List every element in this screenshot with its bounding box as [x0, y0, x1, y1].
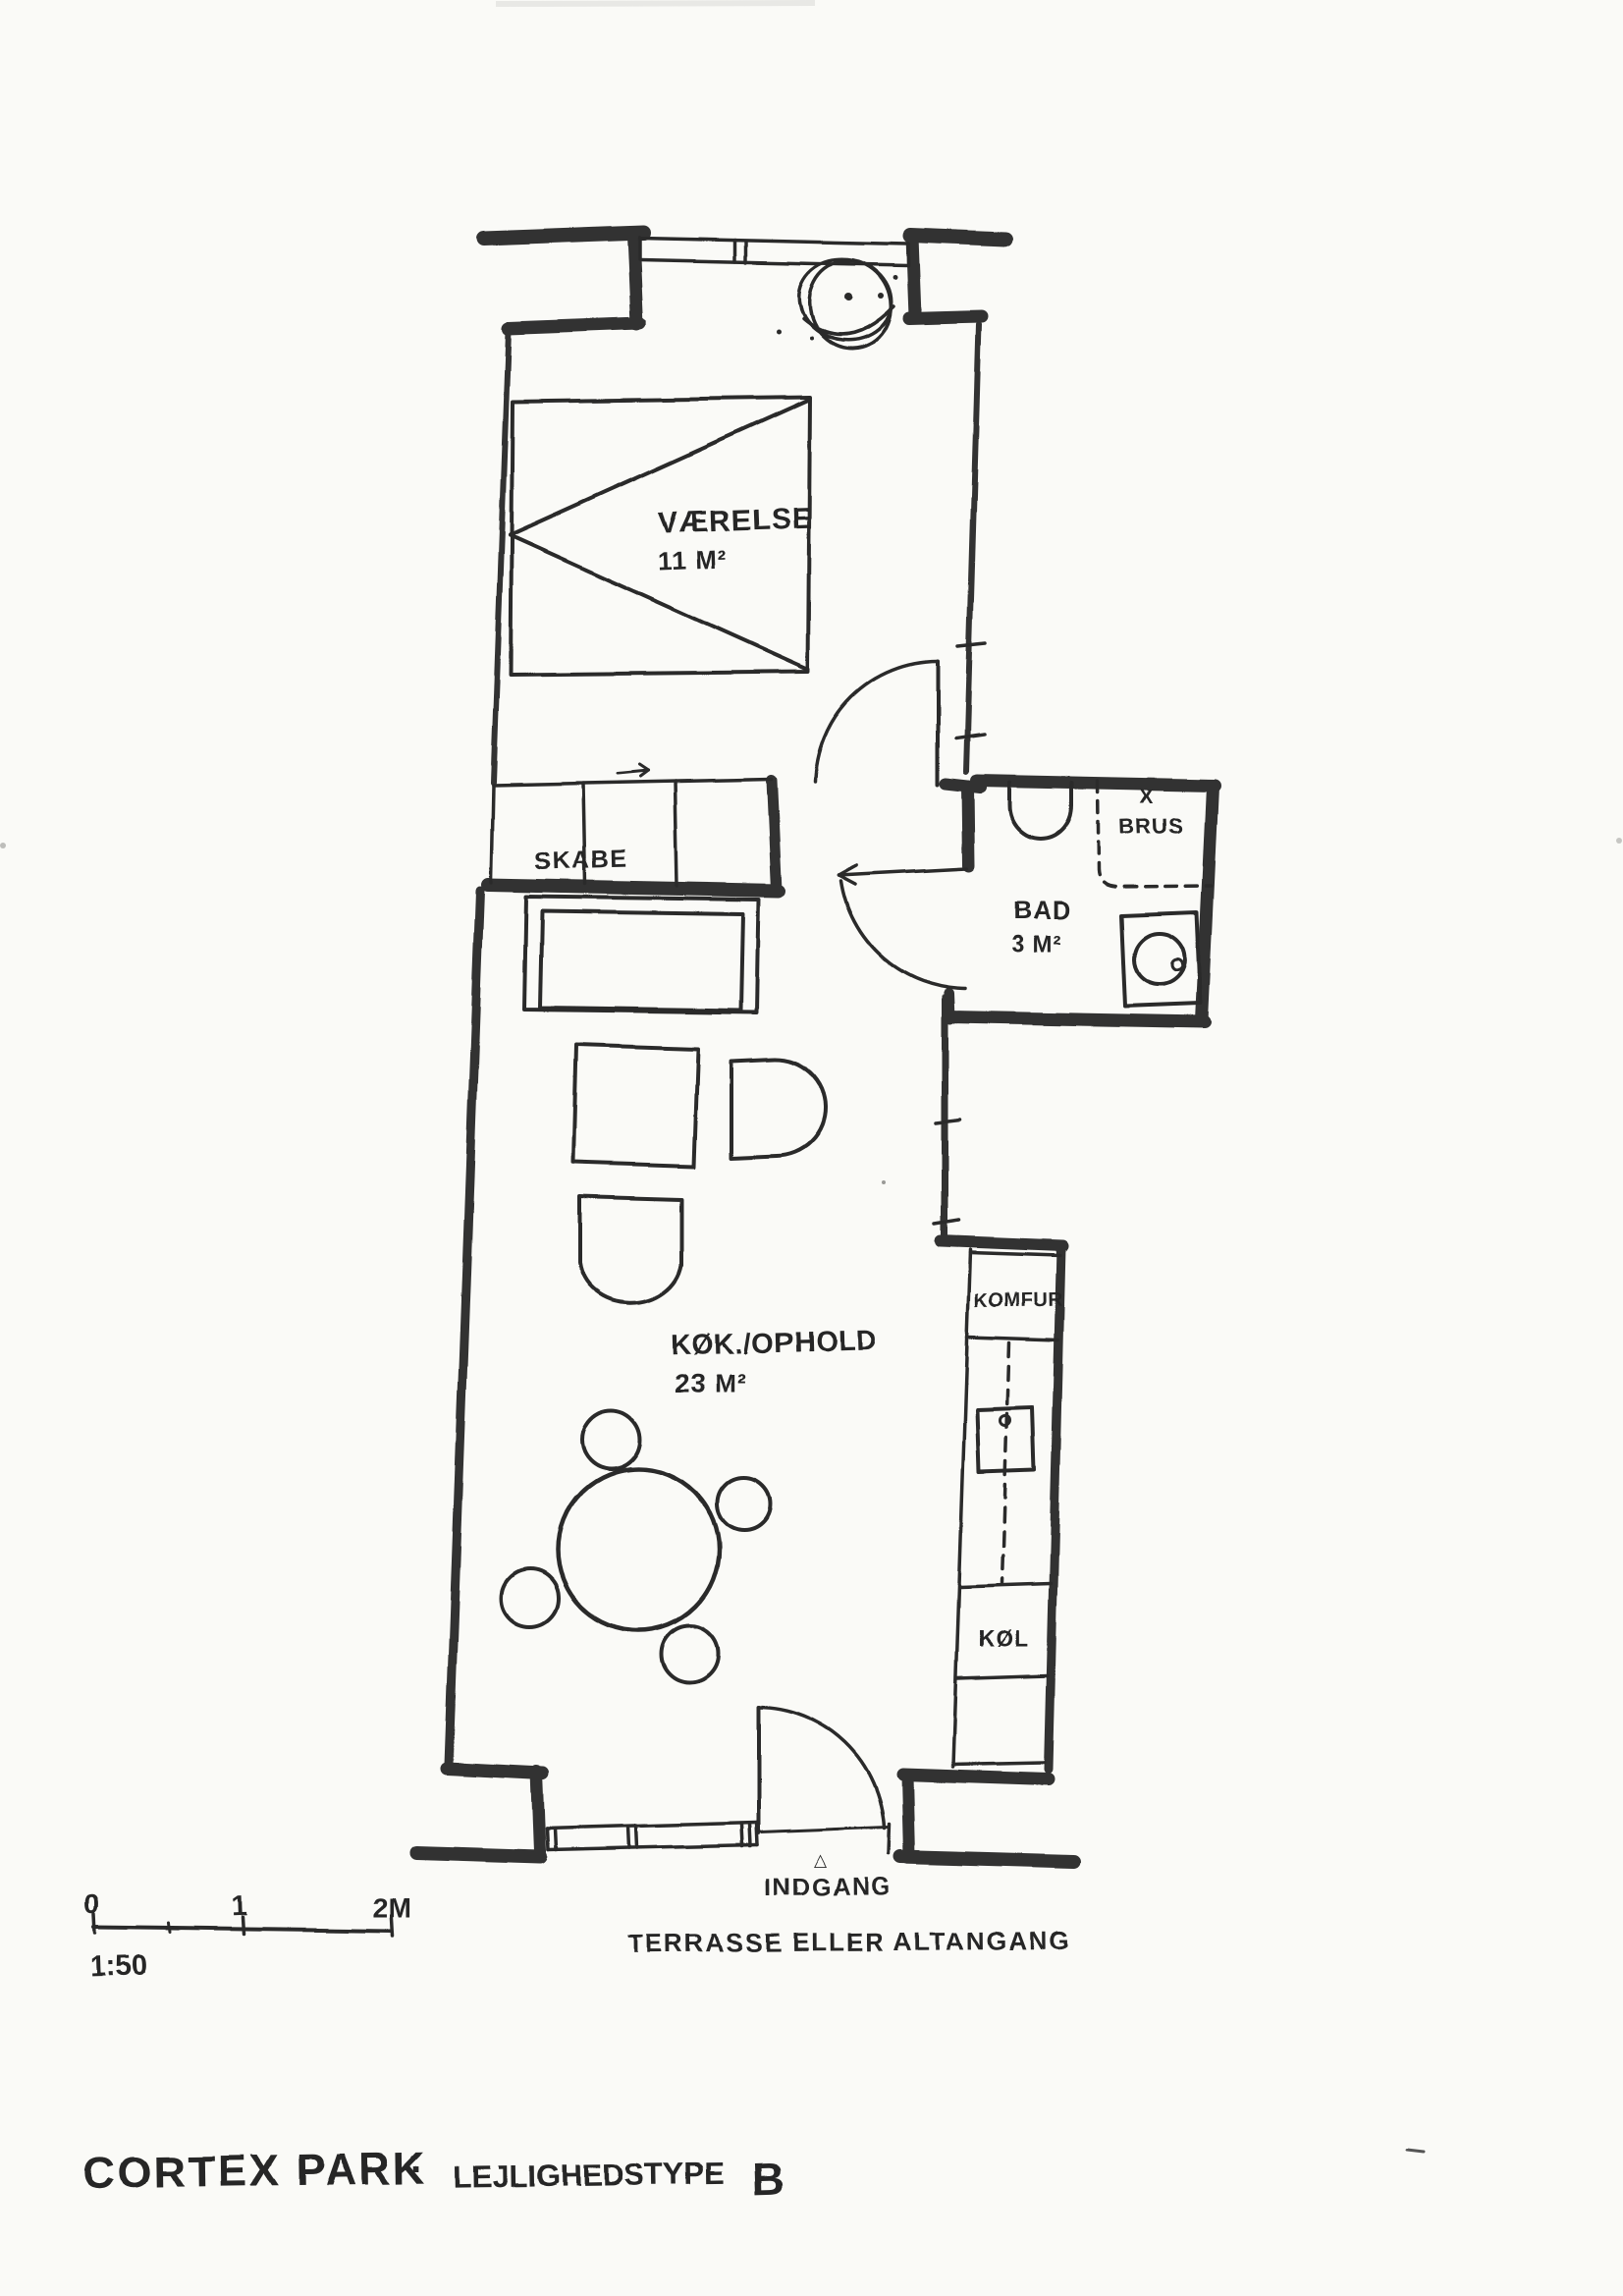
plant	[777, 250, 901, 357]
shower-mark: X	[1140, 787, 1154, 808]
scale-ratio: 1:50	[90, 1949, 148, 1983]
bedroom-area: 11 M²	[657, 544, 727, 575]
bathroom-area: 3 M²	[1011, 931, 1062, 957]
project-title: CORTEX PARK	[82, 2143, 428, 2198]
coffee-table	[573, 1045, 698, 1167]
living-window	[547, 1823, 757, 1850]
bedroom-door	[815, 661, 938, 785]
outer-walls	[416, 233, 1073, 1862]
toilet	[1009, 783, 1072, 839]
kitchen-counter	[953, 1250, 1060, 1767]
closet-label: SKABE	[535, 846, 629, 875]
bathroom-door	[839, 865, 967, 989]
scale-tick-middle: 1	[231, 1890, 247, 1922]
stove-label: KOMFUR	[974, 1289, 1063, 1313]
title-dash	[1406, 2150, 1423, 2152]
entrance-door	[758, 1707, 890, 1854]
lounge-chair-bottom	[580, 1197, 681, 1303]
shower-label: BRUS	[1118, 813, 1184, 840]
outdoor-label: TERRASSE ELLER ALTANGANG	[628, 1926, 1071, 1959]
bathroom-sink	[1121, 912, 1201, 1007]
entrance-marker-icon: △	[814, 1851, 828, 1870]
scale-tick-start: 0	[84, 1888, 100, 1919]
floor-plan-page: VÆRELSE 11 M² SKABE BAD 3 M² X BRUS KØK.…	[0, 0, 1623, 2296]
scale-tick-end: 2M	[373, 1892, 411, 1923]
apartment-type-label: LEJLIGHEDSTYPE	[454, 2157, 725, 2195]
apartment-type-value: B	[751, 2153, 784, 2204]
entrance-label: INDGANG	[765, 1873, 892, 1901]
bedroom-label: VÆRELSE	[658, 503, 813, 540]
bedroom-window	[639, 238, 908, 265]
labels: VÆRELSE 11 M² SKABE BAD 3 M² X BRUS KØK.…	[82, 503, 1184, 2205]
bathroom-label: BAD	[1013, 896, 1071, 925]
kitchen-living-area: 23 M²	[675, 1369, 747, 1398]
sofa	[524, 897, 759, 1012]
dining-chairs	[502, 1410, 770, 1682]
kitchen-living-label: KØK./OPHOLD	[671, 1325, 878, 1361]
title-separator: ·	[411, 2148, 424, 2191]
closet-direction-arrow-icon	[618, 765, 648, 777]
lounge-chair-right	[731, 1060, 826, 1158]
fridge-label: KØL	[978, 1626, 1030, 1652]
scan-artifacts	[0, 3, 1622, 1184]
closet	[491, 780, 772, 886]
dining-table	[558, 1469, 719, 1630]
